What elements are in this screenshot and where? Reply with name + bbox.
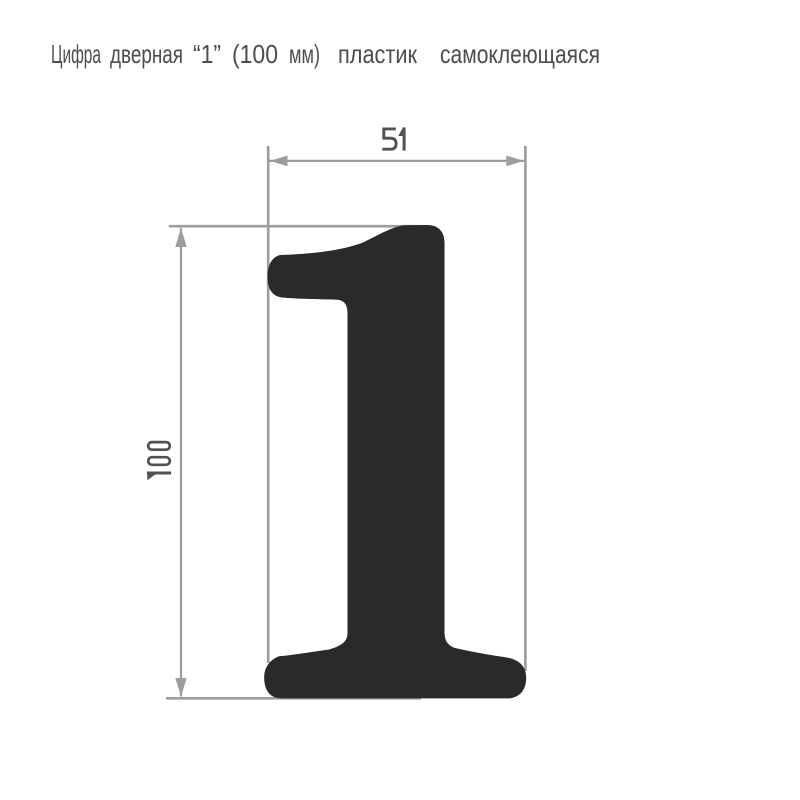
svg-text:Цифра: Цифра: [51, 39, 101, 69]
svg-text:дверная: дверная: [110, 39, 183, 69]
svg-text:мм): мм): [289, 39, 320, 69]
svg-text:пластик: пластик: [338, 39, 418, 69]
svg-text:самоклеющаяся: самоклеющаяся: [440, 39, 600, 69]
svg-text:“1”: “1”: [193, 39, 221, 69]
svg-text:(100: (100: [232, 39, 278, 69]
